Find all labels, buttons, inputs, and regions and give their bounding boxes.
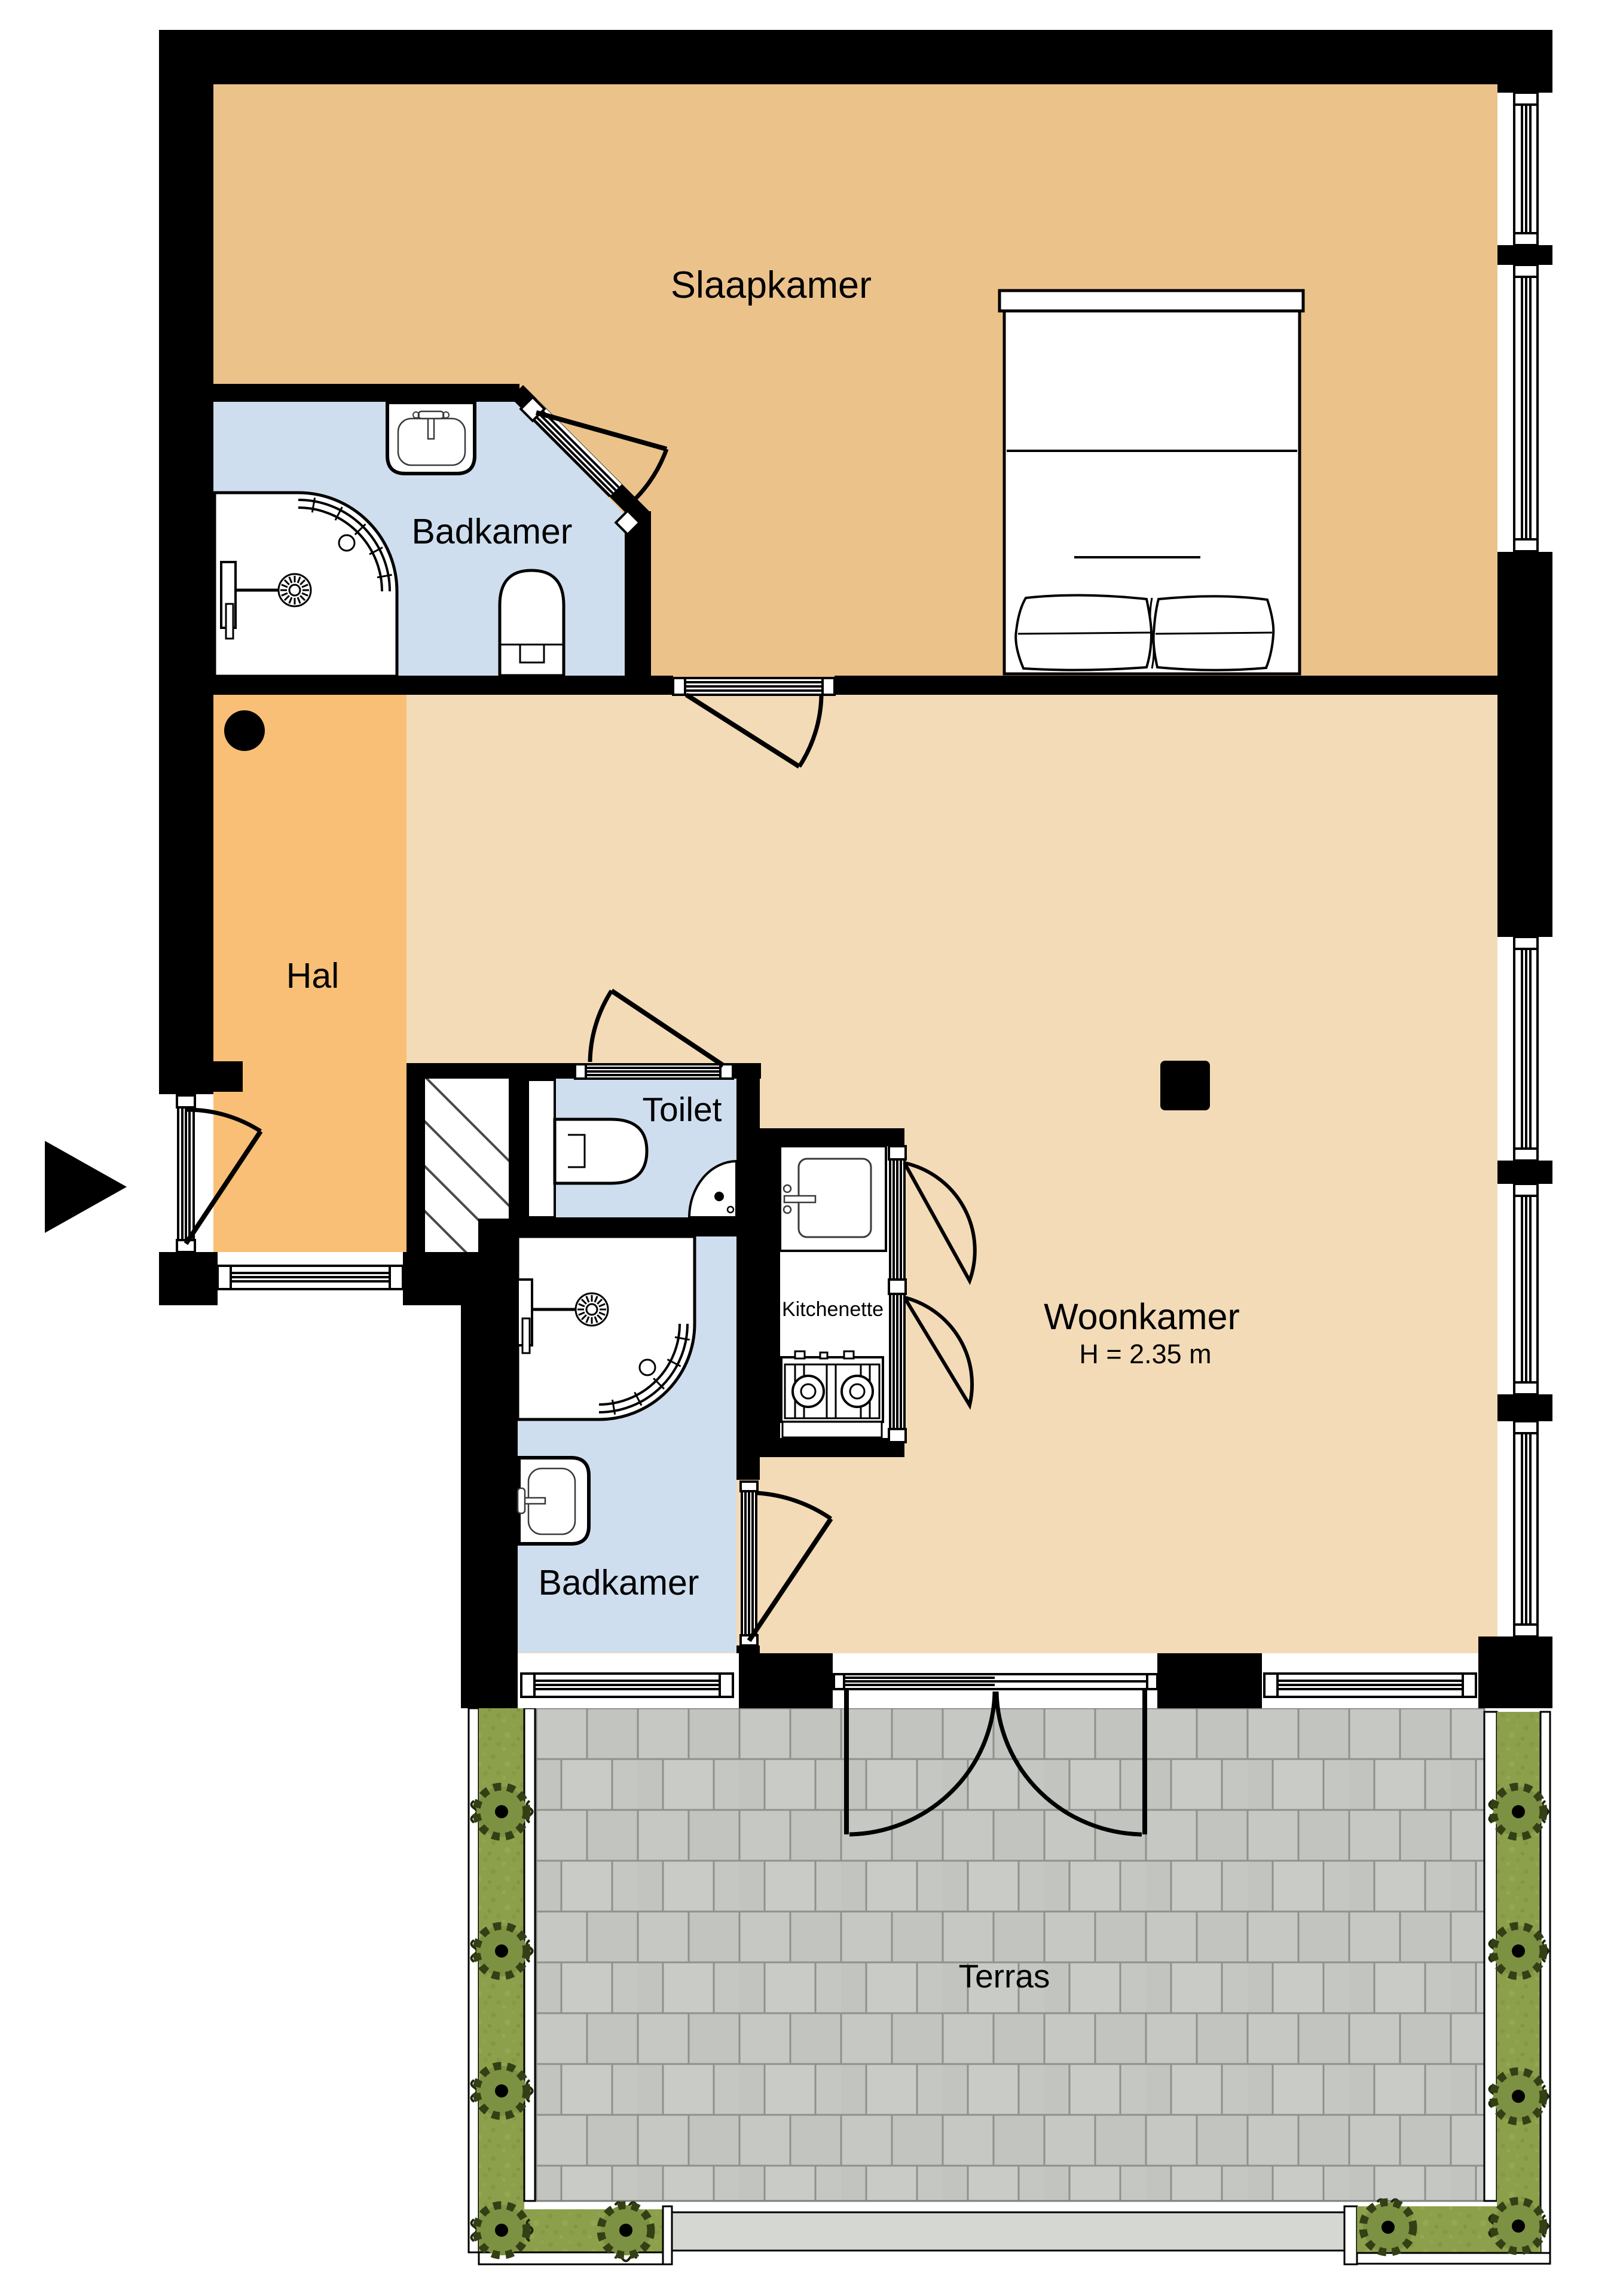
svg-text:Slaapkamer: Slaapkamer	[671, 264, 872, 306]
svg-text:Badkamer: Badkamer	[412, 512, 573, 551]
svg-text:Kitchenette: Kitchenette	[782, 1298, 884, 1321]
svg-text:Toilet: Toilet	[642, 1091, 722, 1129]
svg-text:Woonkamer: Woonkamer	[1044, 1296, 1240, 1337]
svg-text:Terras: Terras	[959, 1958, 1050, 1995]
svg-text:Badkamer: Badkamer	[539, 1563, 699, 1602]
svg-text:Hal: Hal	[286, 956, 340, 996]
svg-text:H = 2.35 m: H = 2.35 m	[1079, 1339, 1211, 1369]
